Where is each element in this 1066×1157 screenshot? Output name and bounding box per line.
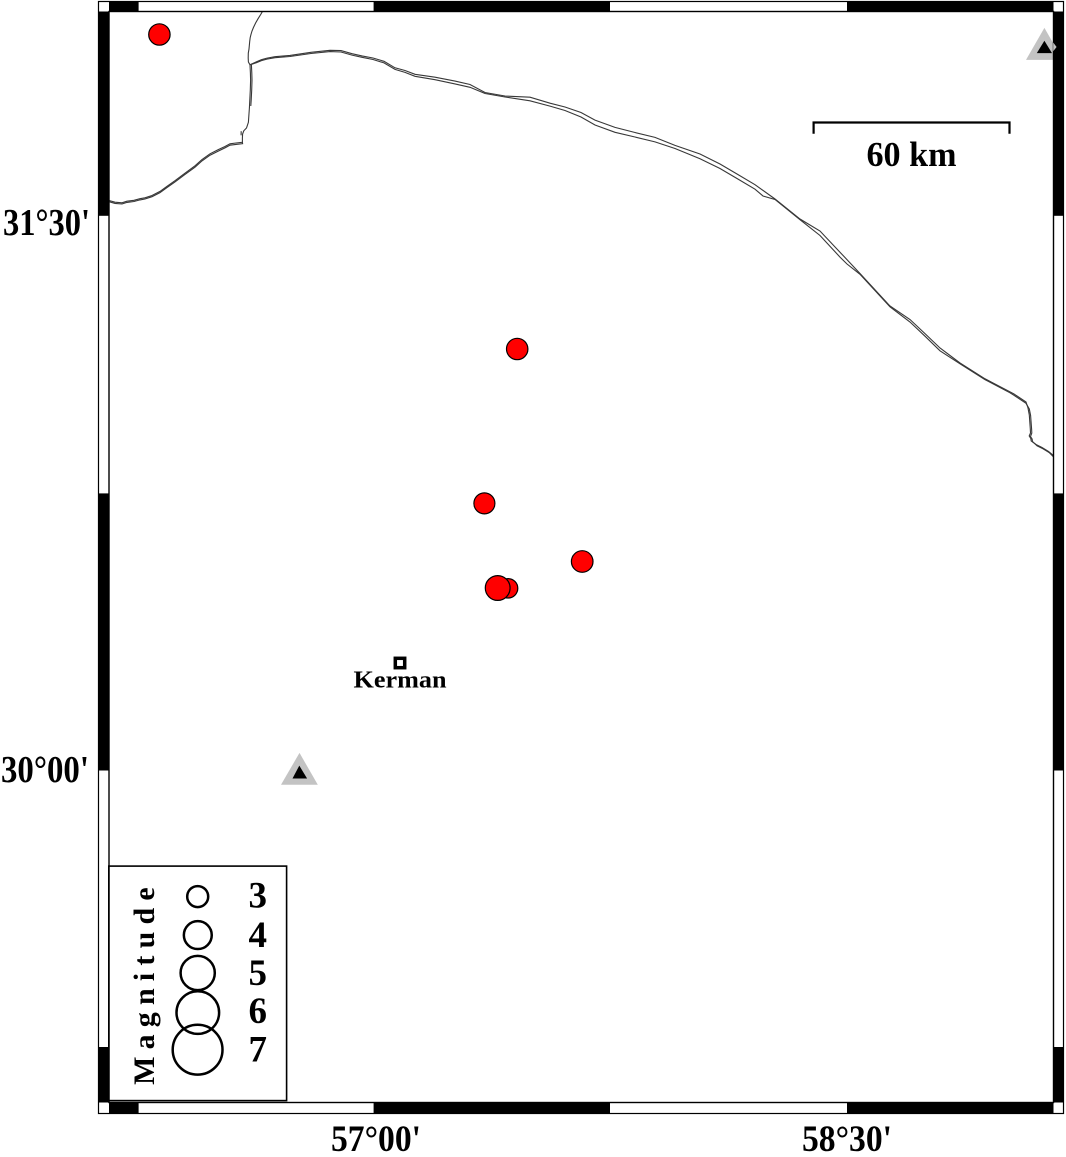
svg-text:58°30': 58°30' — [802, 1119, 892, 1152]
svg-text:4: 4 — [249, 915, 268, 956]
svg-text:Magnitude: Magnitude — [128, 880, 161, 1085]
svg-text:Kerman: Kerman — [354, 667, 447, 693]
svg-text:57°00': 57°00' — [331, 1119, 421, 1152]
svg-text:60 km: 60 km — [867, 135, 957, 174]
svg-text:6: 6 — [249, 991, 268, 1032]
svg-text:3: 3 — [249, 876, 268, 917]
svg-text:5: 5 — [249, 953, 268, 994]
svg-text:30°00': 30°00' — [1, 749, 89, 791]
svg-text:7: 7 — [249, 1030, 268, 1071]
svg-text:31°30': 31°30' — [3, 202, 90, 244]
